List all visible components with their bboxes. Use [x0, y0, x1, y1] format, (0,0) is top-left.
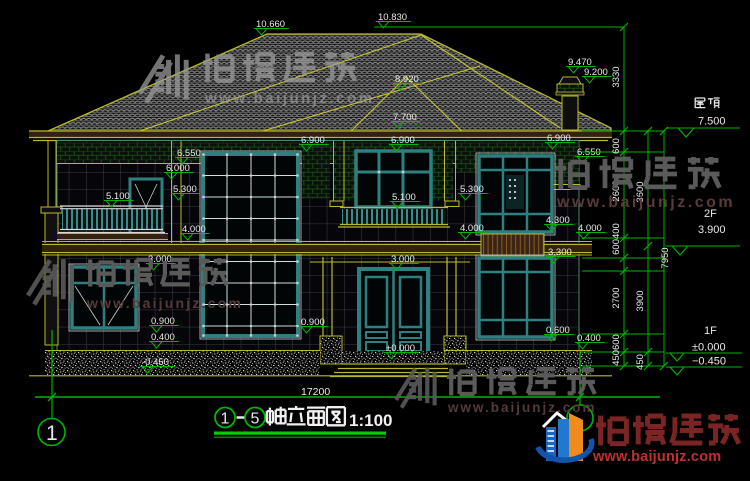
svg-text:1: 1 — [221, 411, 230, 428]
svg-text:2700: 2700 — [611, 287, 622, 308]
svg-text:450600: 450600 — [611, 334, 622, 366]
svg-text:www.baijunjz.com: www.baijunjz.com — [447, 400, 597, 415]
svg-text:7.500: 7.500 — [698, 116, 726, 128]
svg-text:5: 5 — [251, 411, 260, 428]
svg-text:www.baijunjz.com: www.baijunjz.com — [592, 449, 721, 465]
svg-text:17200: 17200 — [301, 386, 330, 398]
svg-text:www.baijunjz.com: www.baijunjz.com — [556, 194, 735, 211]
svg-text:7950: 7950 — [660, 247, 671, 268]
svg-text:450: 450 — [635, 354, 646, 370]
svg-text:1: 1 — [46, 422, 58, 445]
svg-text:1F: 1F — [704, 325, 717, 337]
svg-text:±0.000: ±0.000 — [692, 342, 726, 354]
svg-text:3330: 3330 — [611, 66, 622, 87]
svg-text:3900: 3900 — [635, 290, 646, 311]
svg-text:1:100: 1:100 — [349, 411, 392, 430]
svg-text:www.baijunjz.com: www.baijunjz.com — [86, 295, 243, 311]
svg-text:3.900: 3.900 — [698, 224, 726, 236]
svg-text:600400: 600400 — [611, 223, 622, 255]
svg-text:www.baijunjz.com: www.baijunjz.com — [204, 90, 374, 107]
svg-text:−0.450: −0.450 — [692, 356, 726, 368]
svg-text:600: 600 — [611, 138, 622, 154]
